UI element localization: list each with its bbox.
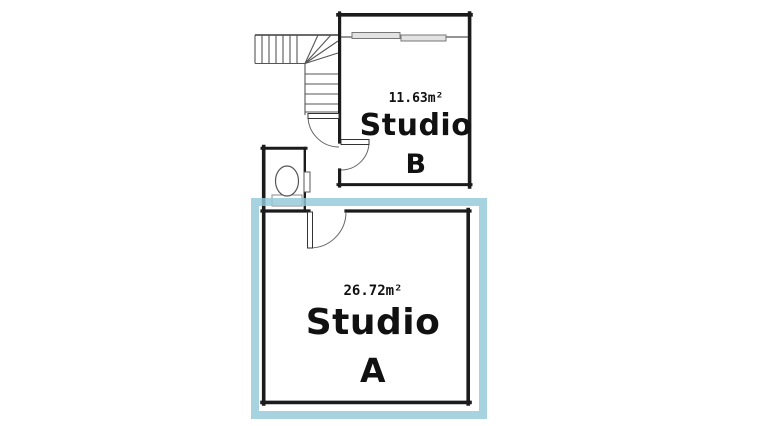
hall-door-icon [308, 114, 339, 148]
sliding-window-icon [341, 33, 468, 42]
studio-b-area: 11.63m² [340, 90, 492, 108]
studio-a-letter: A [263, 345, 483, 397]
floorplan-canvas: 11.63m² Studio B 26.72m² Studio A [0, 0, 764, 426]
studio-a-area: 26.72m² [263, 282, 483, 301]
toilet-door-icon [304, 172, 310, 192]
studio-a-label: 26.72m² Studio A [263, 282, 483, 397]
staircase-icon [255, 35, 338, 115]
studio-b-name: Studio [340, 108, 492, 144]
studio-b-label: 11.63m² Studio B [340, 90, 492, 186]
studio-a-name: Studio [263, 301, 483, 345]
studio-b-letter: B [340, 144, 492, 186]
